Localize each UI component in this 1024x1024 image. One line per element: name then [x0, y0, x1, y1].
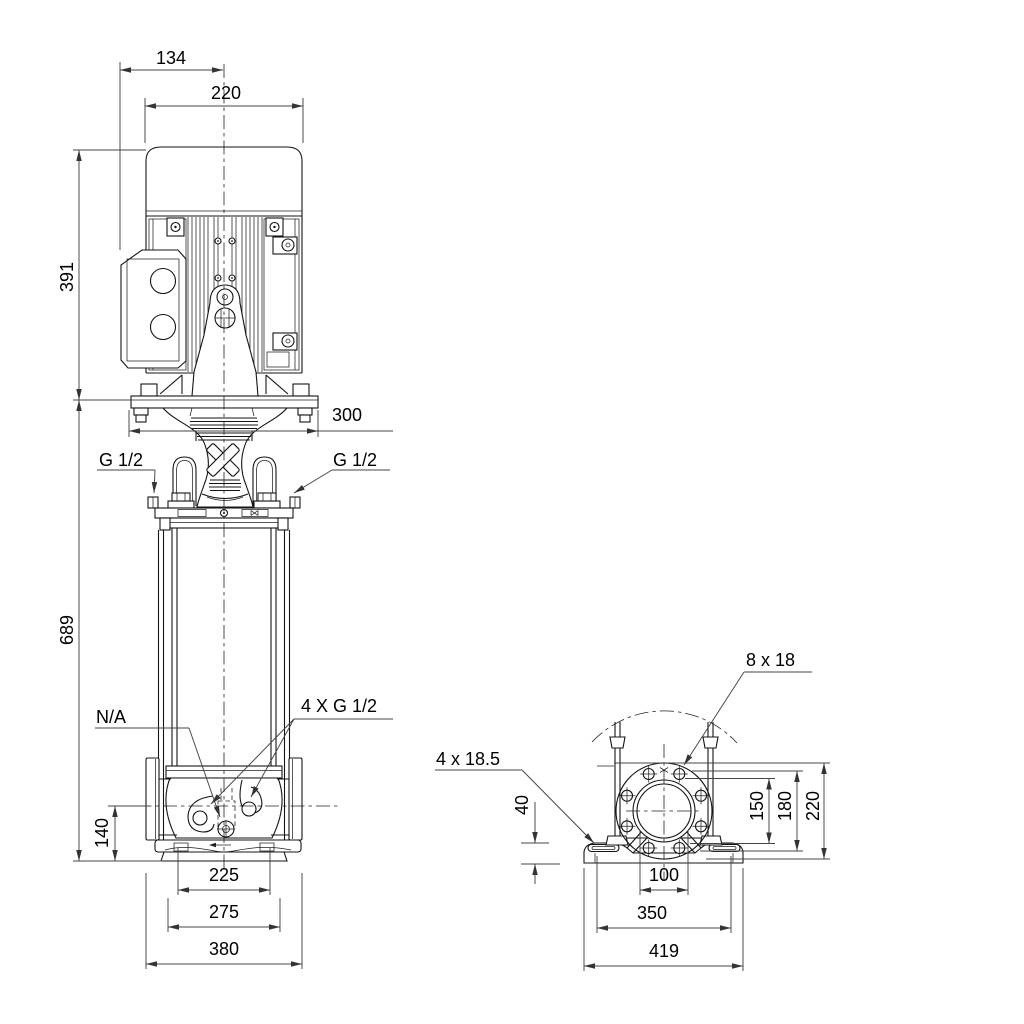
dim-text: 689: [57, 615, 77, 645]
dim-text: 391: [57, 262, 77, 292]
dim-text: 220: [803, 791, 823, 821]
svg-text:N/A: N/A: [96, 707, 126, 727]
stool-bolt-left: [134, 408, 148, 422]
dim-foot-width: 275: [168, 898, 280, 932]
end-view: 8 x 18 4 x 18.5 40 150: [435, 650, 830, 971]
dim-text: 100: [649, 865, 679, 885]
svg-text:8 x 18: 8 x 18: [746, 650, 795, 670]
label-flange-bolt-holes: 8 x 18: [684, 650, 812, 765]
vent-plug-right: [254, 493, 280, 508]
dim-text: 40: [512, 795, 532, 815]
terminal-box: [121, 250, 186, 368]
dim-text: 225: [209, 865, 239, 885]
motor: [121, 147, 309, 396]
gauge-port-stud-right: [290, 497, 300, 508]
motor-bracket-upper: [273, 237, 297, 254]
stool-bolt-right: [298, 408, 312, 422]
dim-text: 419: [649, 941, 679, 961]
fan-cover: [146, 147, 302, 216]
svg-text:G 1/2: G 1/2: [333, 450, 377, 470]
dim-text: 300: [332, 405, 362, 425]
base-foot: [155, 840, 301, 861]
label-gauge-port-left: G 1/2: [97, 450, 155, 493]
technical-drawing-page: 134 220 391 689 300: [0, 0, 1024, 1024]
dim-text: 140: [92, 818, 112, 848]
dim-foot-height: 40: [512, 795, 560, 884]
svg-text:4 x 18.5: 4 x 18.5: [436, 749, 500, 769]
dim-text: 380: [209, 939, 239, 959]
dim-text: 180: [775, 791, 795, 821]
dim-text: 350: [637, 903, 667, 923]
cable-entry-hole: [151, 315, 176, 340]
dim-port-height: 140: [92, 806, 150, 861]
vent-plug-left: [168, 493, 194, 508]
dim-text: 150: [747, 791, 767, 821]
discharge-flange: [289, 758, 302, 840]
front-view: 134 220 391 689 300: [57, 48, 393, 969]
suction-flange: [146, 758, 159, 840]
pump-dimensional-drawing: 134 220 391 689 300: [0, 0, 1024, 1024]
screw-pad-right: [266, 218, 283, 236]
gauge-port-stud-left: [148, 497, 158, 508]
dim-text: 134: [156, 48, 186, 68]
svg-text:G 1/2: G 1/2: [99, 450, 143, 470]
motor-bracket-lower: [273, 333, 297, 350]
screw-pad-left: [167, 218, 184, 236]
label-gauge-port-right: G 1/2: [294, 450, 390, 493]
lifting-bracket: [192, 285, 258, 396]
cable-entry-hole: [151, 269, 176, 294]
dim-text: 275: [209, 902, 239, 922]
dim-text: 220: [211, 83, 241, 103]
svg-text:4 X G 1/2: 4 X G 1/2: [301, 696, 377, 716]
